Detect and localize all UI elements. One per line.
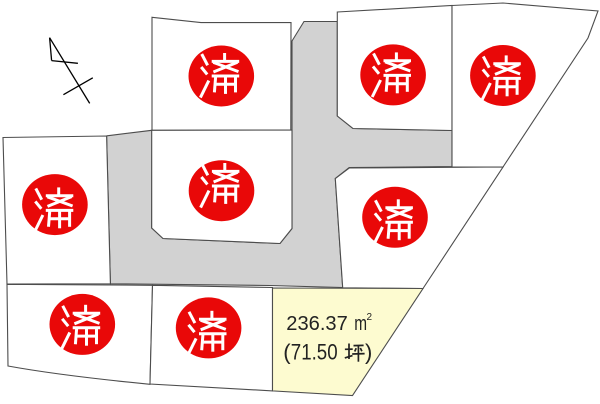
svg-text:236.37: 236.37 (286, 312, 348, 335)
svg-text:): ) (365, 340, 372, 365)
svg-text:2: 2 (367, 312, 373, 323)
svg-text:m: m (354, 312, 367, 335)
svg-text:71.50: 71.50 (291, 340, 338, 365)
